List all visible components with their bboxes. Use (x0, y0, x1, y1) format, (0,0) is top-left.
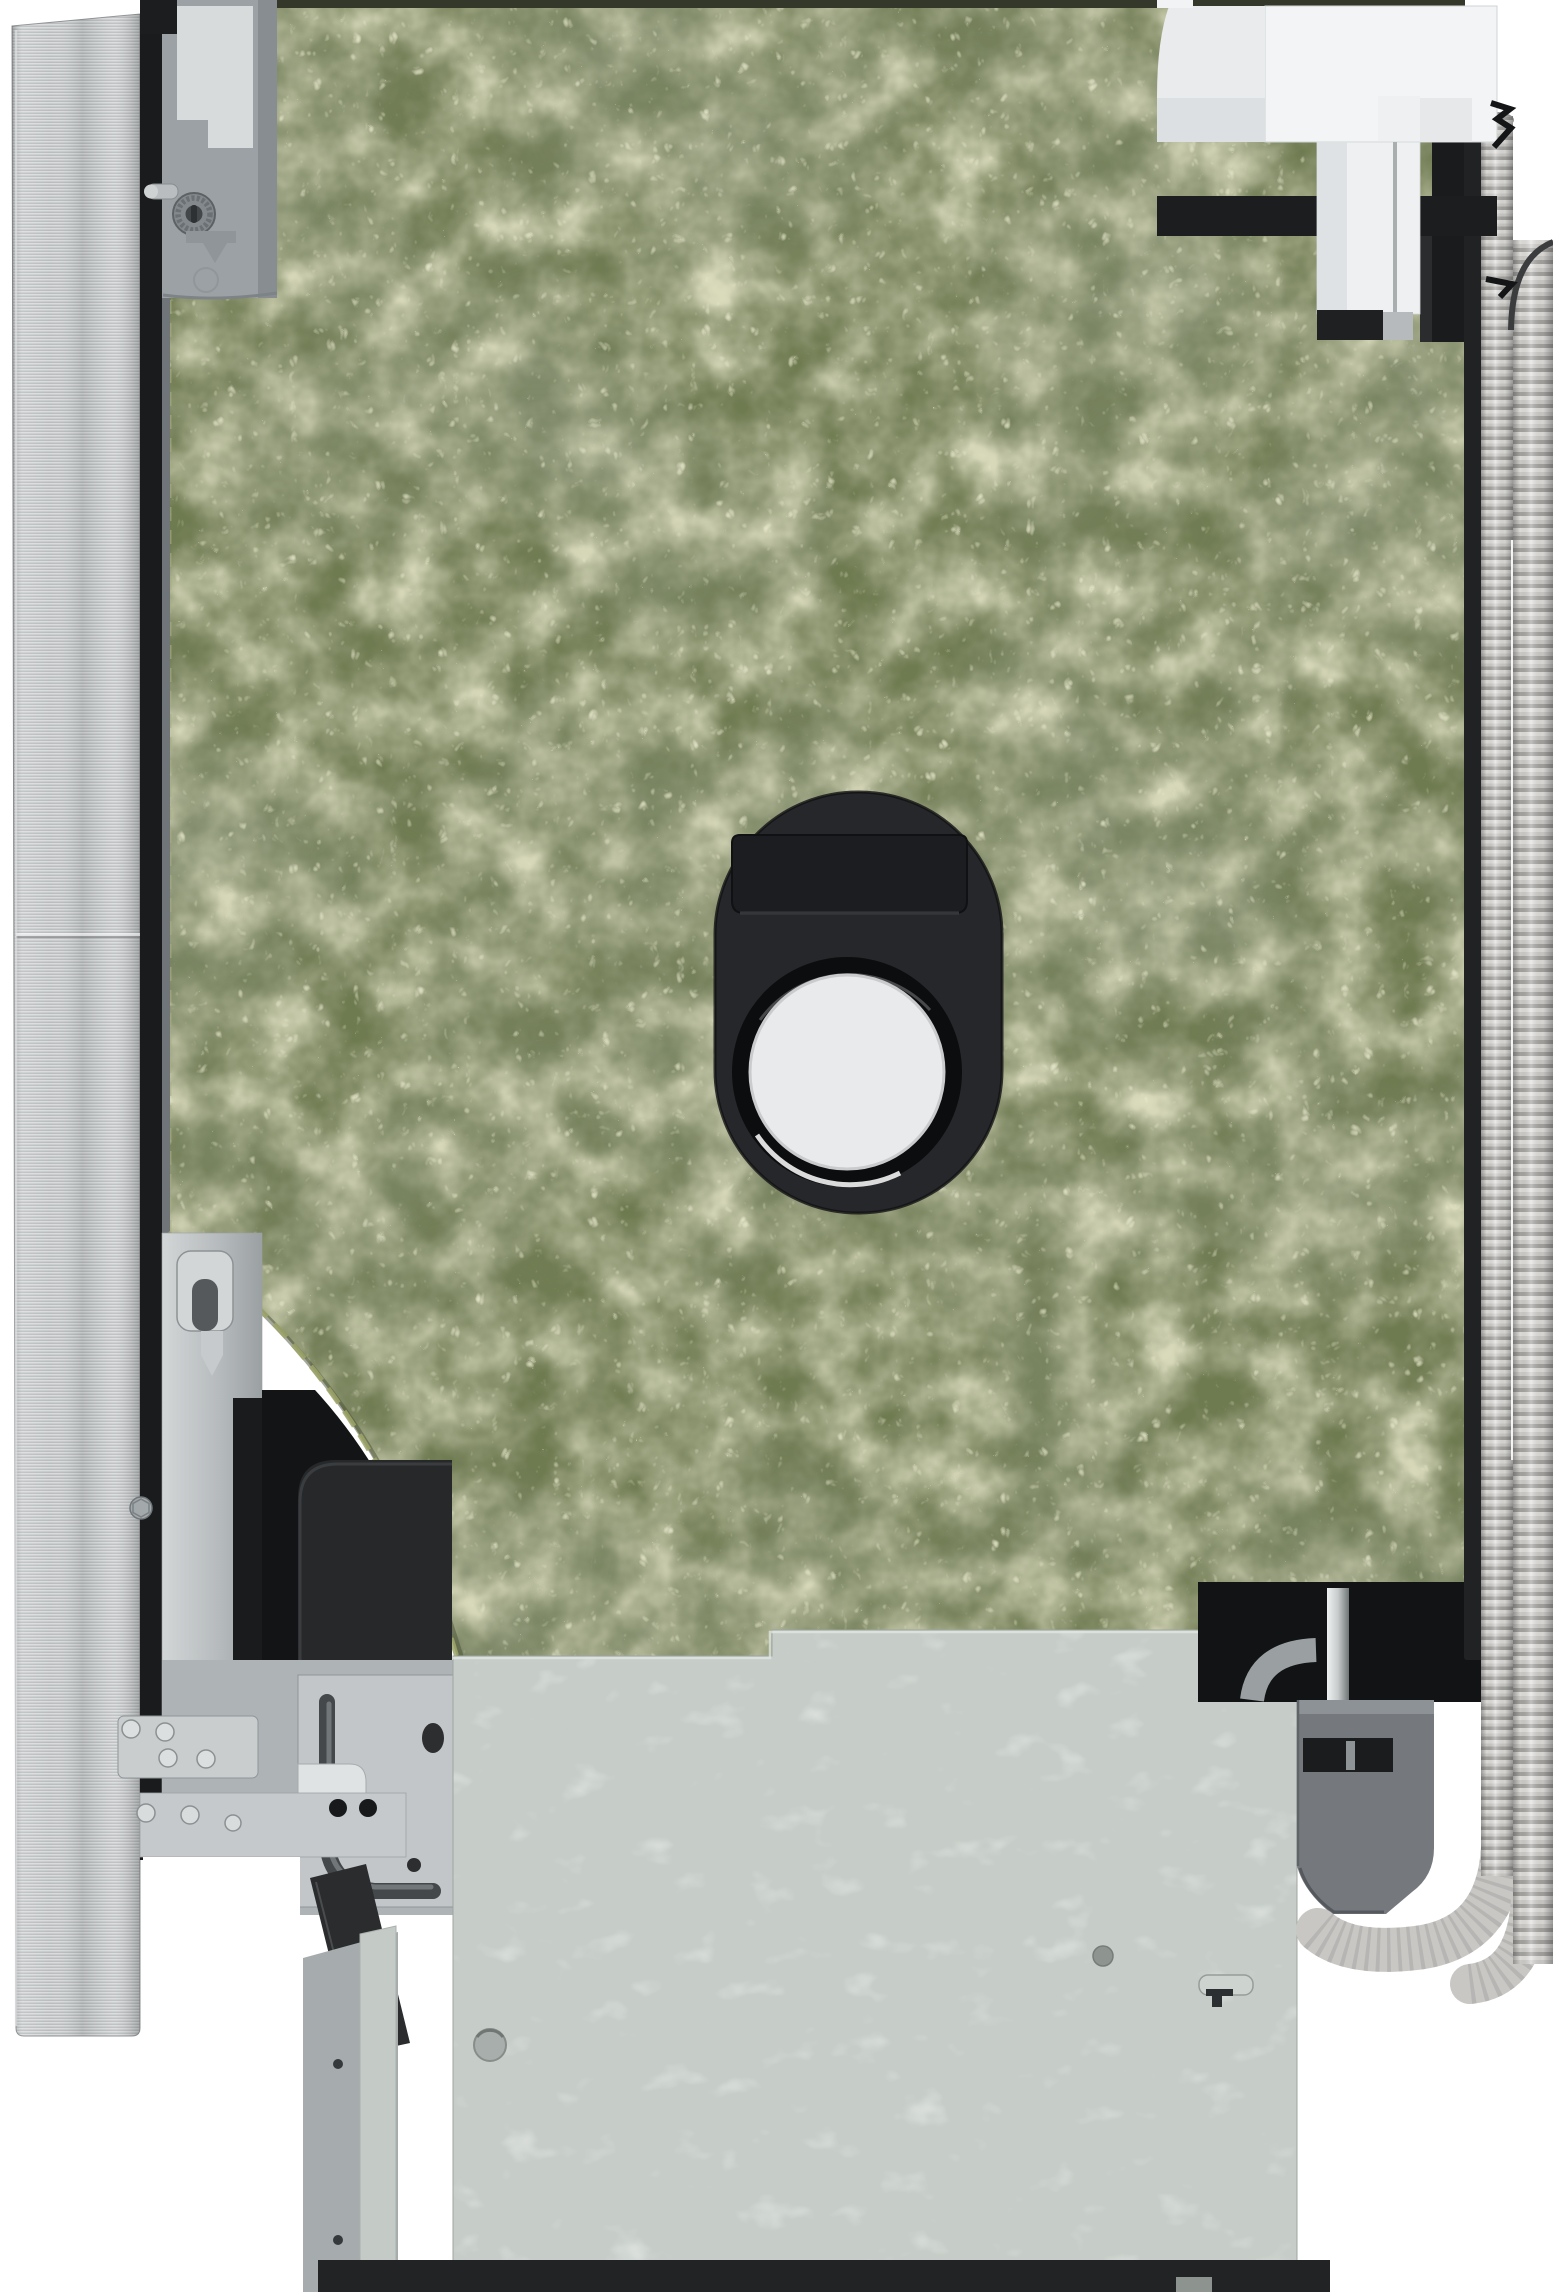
hinge-bracket-shade (258, 0, 277, 298)
door-edge-strip (140, 8, 163, 1860)
tub-bottom-zone (1198, 1582, 1490, 1702)
foot-hole-bottom (333, 2235, 343, 2245)
inlet-rod (1393, 142, 1397, 312)
foot-galvanized-strip (360, 1926, 396, 2292)
hinge-bracket-sliver (162, 298, 170, 1233)
metal-strip (1327, 1588, 1349, 1702)
hinge-pin (144, 184, 178, 199)
drain-hose-a (1480, 112, 1514, 1876)
height-adjustment-wheel (173, 193, 215, 235)
base-plate-hole-right (1093, 1946, 1113, 1966)
cabinet-rear-channel-shadow (1420, 235, 1432, 342)
drain-hose-b (1511, 240, 1553, 1964)
plinth-shadow-strip (318, 2260, 1330, 2292)
bracket-slot-clip (1346, 1741, 1355, 1770)
hinge-corner-dark (140, 0, 177, 34)
bottom-strip-tab (1176, 2277, 1212, 2292)
inner-tub-wall (298, 1460, 452, 1662)
drain-hose-bracket (1297, 1700, 1434, 1914)
hinge-upper-bar (118, 1716, 258, 1778)
photo-stage: Cut-out studio photo of a built-in dishw… (0, 0, 1553, 2292)
bracket-top-face (1297, 1700, 1434, 1714)
hinge-bolt (130, 1497, 152, 1519)
inlet-block-left-shade (1157, 98, 1265, 142)
door-hinge-mechanism (118, 1660, 453, 2055)
inlet-block-lower-shade (1317, 142, 1347, 314)
foot-hole-top (333, 2059, 343, 2069)
hinge-white-gap (143, 1857, 300, 1937)
side-panel-service-port (715, 792, 1002, 1213)
dishwasher-side-view-photo: Cut-out studio photo of a built-in dishw… (0, 0, 1553, 2292)
hinge-bar (186, 231, 236, 243)
inlet-pillar-upper (1378, 96, 1420, 142)
door-seam-shadow (16, 936, 140, 938)
rear-foot-panel (303, 1926, 398, 2292)
inlet-top-tab (1157, 0, 1193, 8)
port-flap (732, 835, 967, 913)
inlet-bottom-silver (1383, 312, 1413, 340)
inlet-block-small (1420, 98, 1472, 142)
inlet-bottom-shadow (1317, 310, 1383, 340)
galvanized-base-plate (453, 1630, 1297, 2266)
bracket-body (1297, 1700, 1434, 1914)
hinge-lower-plate (137, 1793, 406, 1857)
wheel-slot (191, 205, 197, 223)
base-plate-texture-dark (453, 1630, 1297, 2266)
door-seam-highlight (16, 933, 140, 936)
